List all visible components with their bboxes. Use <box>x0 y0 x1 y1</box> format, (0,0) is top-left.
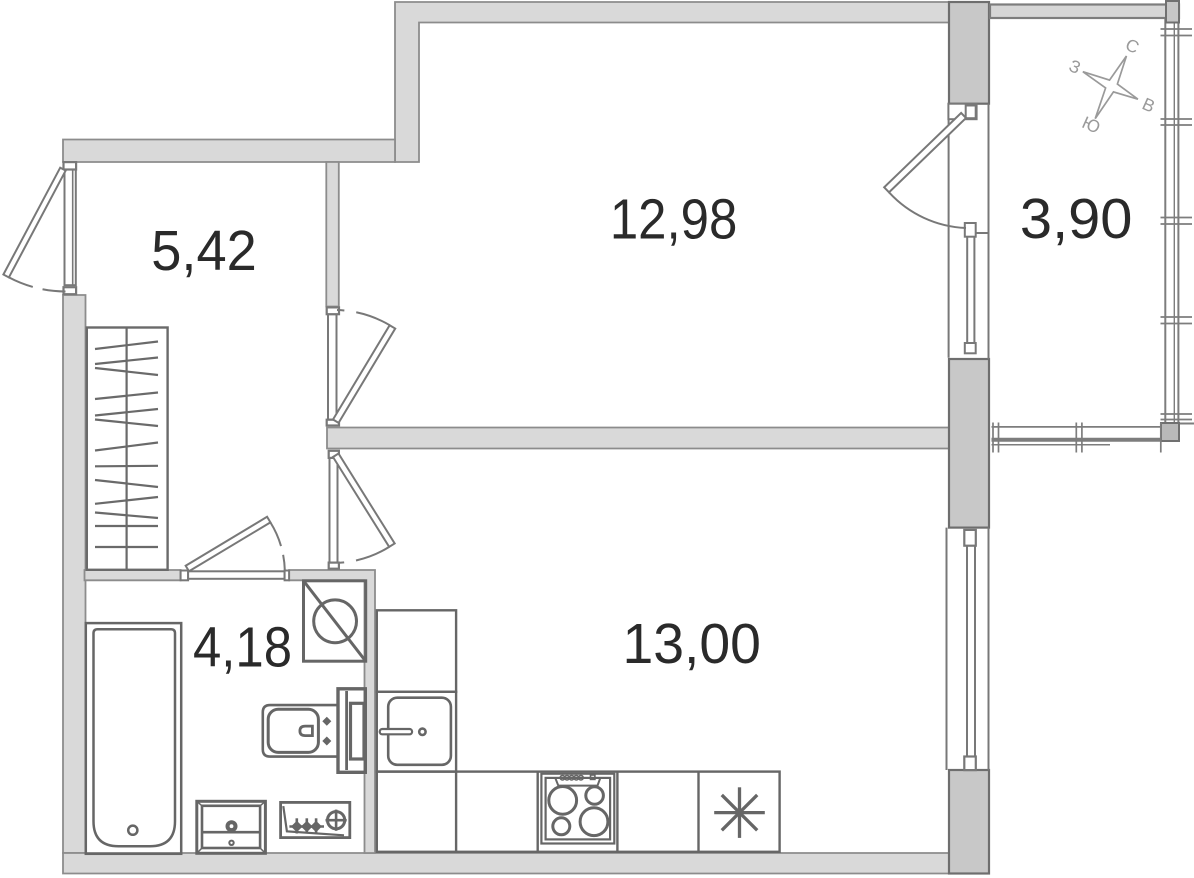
svg-text:3,90: 3,90 <box>1020 187 1133 250</box>
svg-text:5,42: 5,42 <box>151 219 257 282</box>
svg-text:4,18: 4,18 <box>193 616 292 679</box>
svg-text:12,98: 12,98 <box>610 187 738 250</box>
svg-text:13,00: 13,00 <box>622 612 761 675</box>
